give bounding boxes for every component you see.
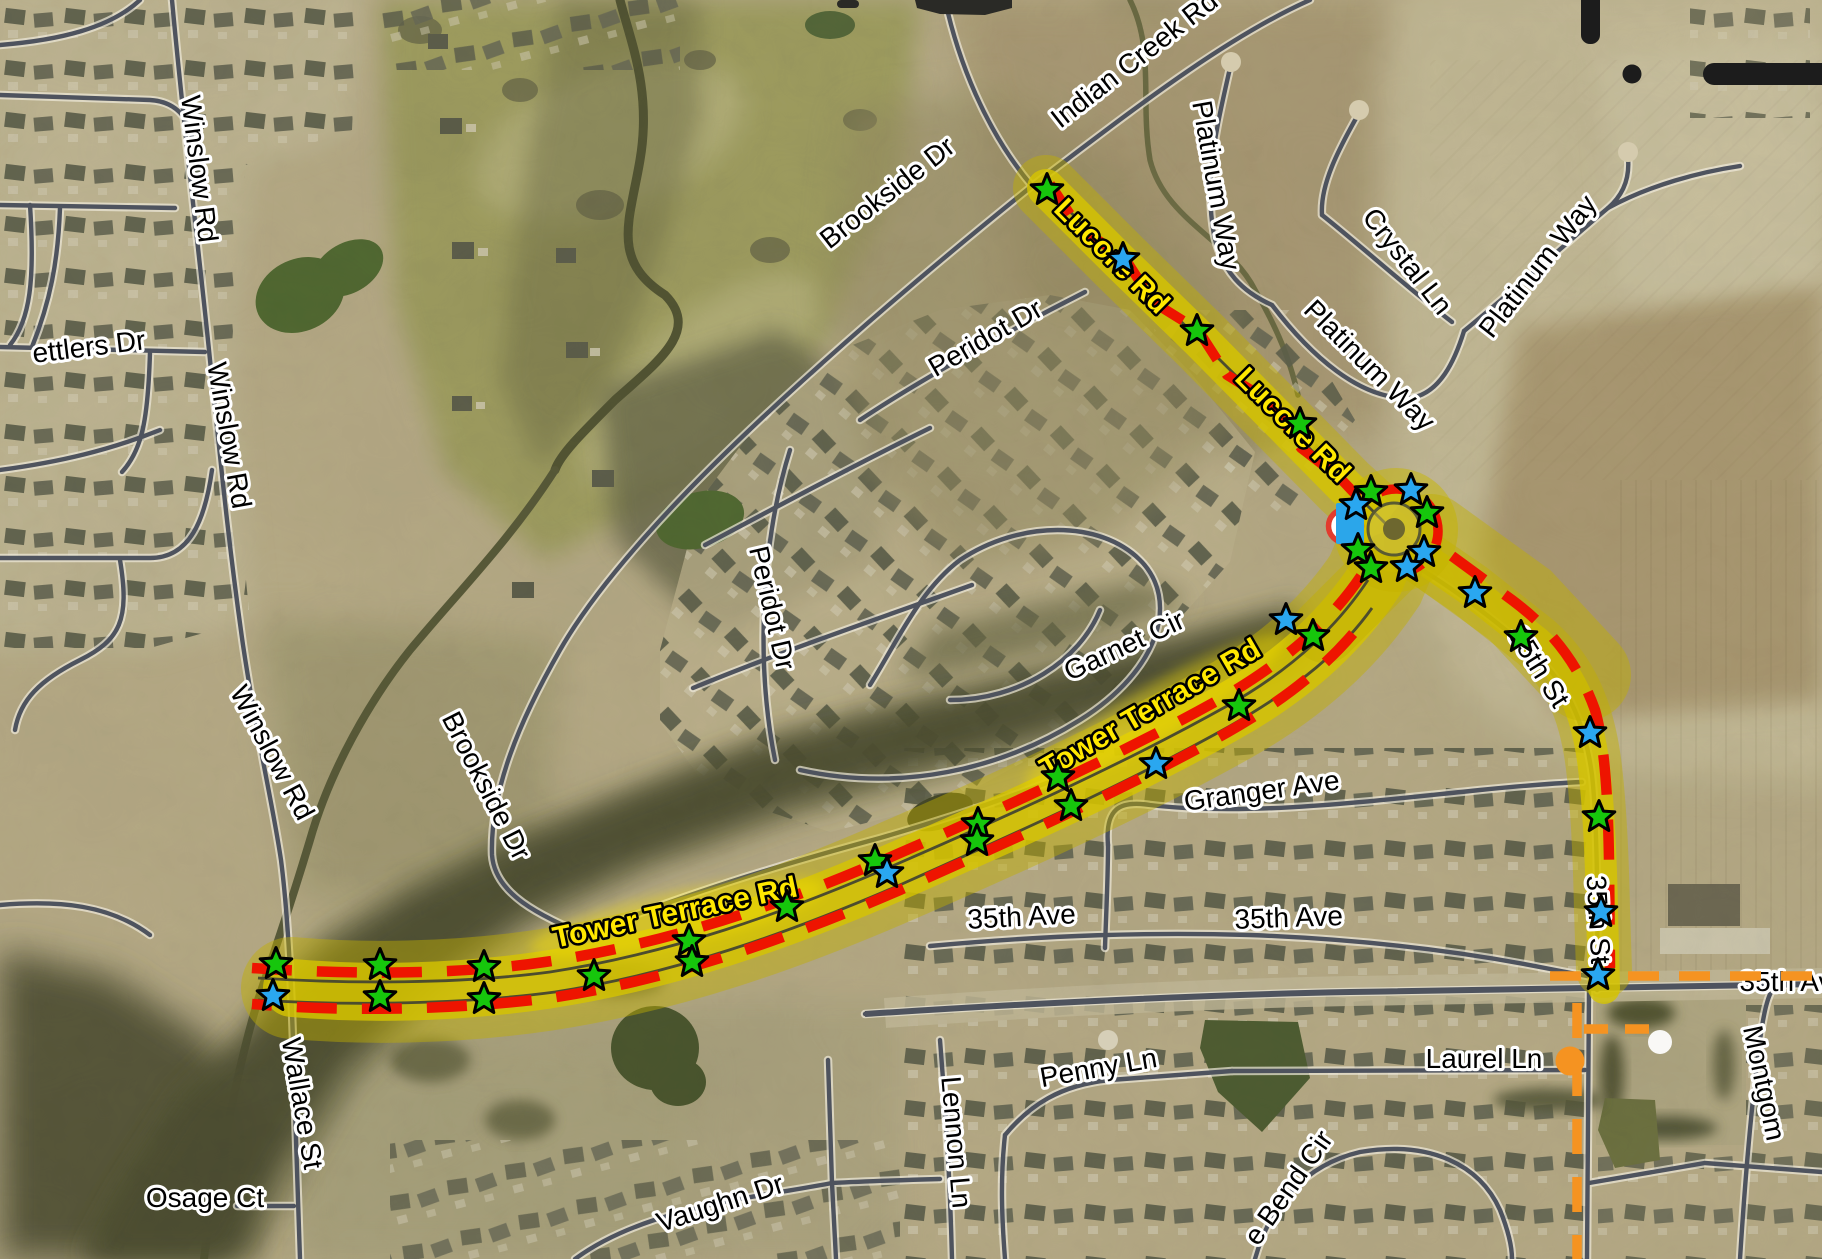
svg-text:Laurel Ln: Laurel Ln — [1426, 1043, 1543, 1074]
svg-text:35th Ave: 35th Ave — [1234, 900, 1344, 935]
svg-text:Osage Ct: Osage Ct — [146, 1182, 264, 1213]
svg-text:35th Ave: 35th Ave — [967, 898, 1077, 935]
svg-text:35th Av: 35th Av — [1740, 966, 1822, 997]
